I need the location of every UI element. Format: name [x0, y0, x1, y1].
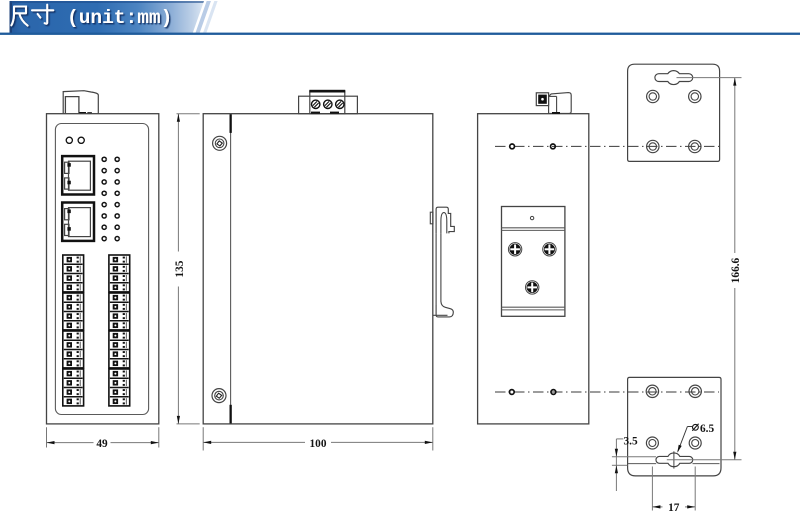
svg-text:100: 100	[310, 438, 327, 450]
svg-text:(unit:mm): (unit:mm)	[67, 7, 172, 29]
svg-text:49: 49	[96, 438, 108, 450]
svg-text:6.5: 6.5	[700, 423, 714, 435]
svg-text:3.5: 3.5	[624, 435, 638, 447]
svg-text:166.6: 166.6	[730, 257, 742, 283]
svg-text:17: 17	[668, 502, 680, 514]
svg-text:135: 135	[174, 260, 186, 277]
